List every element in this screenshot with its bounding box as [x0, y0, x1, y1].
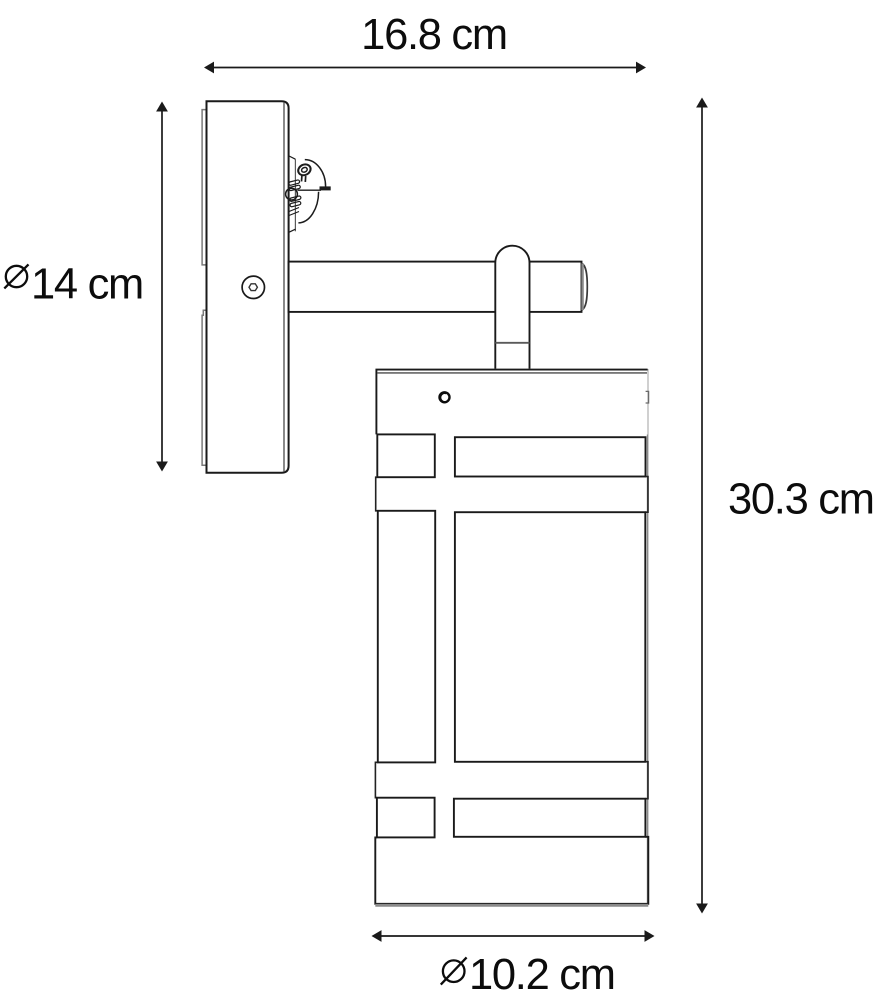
svg-text:30.3 cm: 30.3 cm: [728, 476, 874, 524]
svg-text:16.8 cm: 16.8 cm: [361, 11, 507, 59]
svg-text:14 cm: 14 cm: [31, 261, 143, 309]
svg-text:10.2 cm: 10.2 cm: [469, 951, 615, 999]
